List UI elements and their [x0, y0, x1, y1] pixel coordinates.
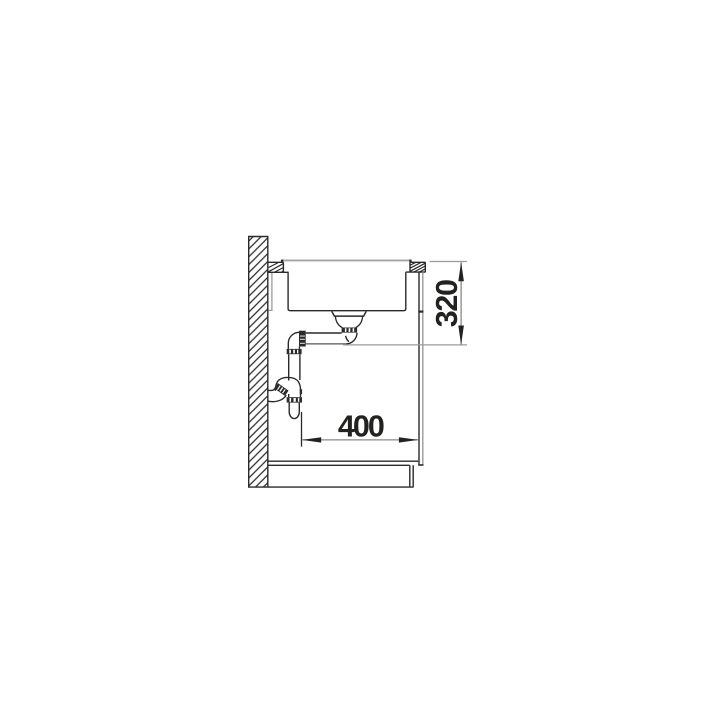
svg-text:400: 400: [338, 410, 384, 444]
svg-text:320: 320: [430, 280, 464, 327]
